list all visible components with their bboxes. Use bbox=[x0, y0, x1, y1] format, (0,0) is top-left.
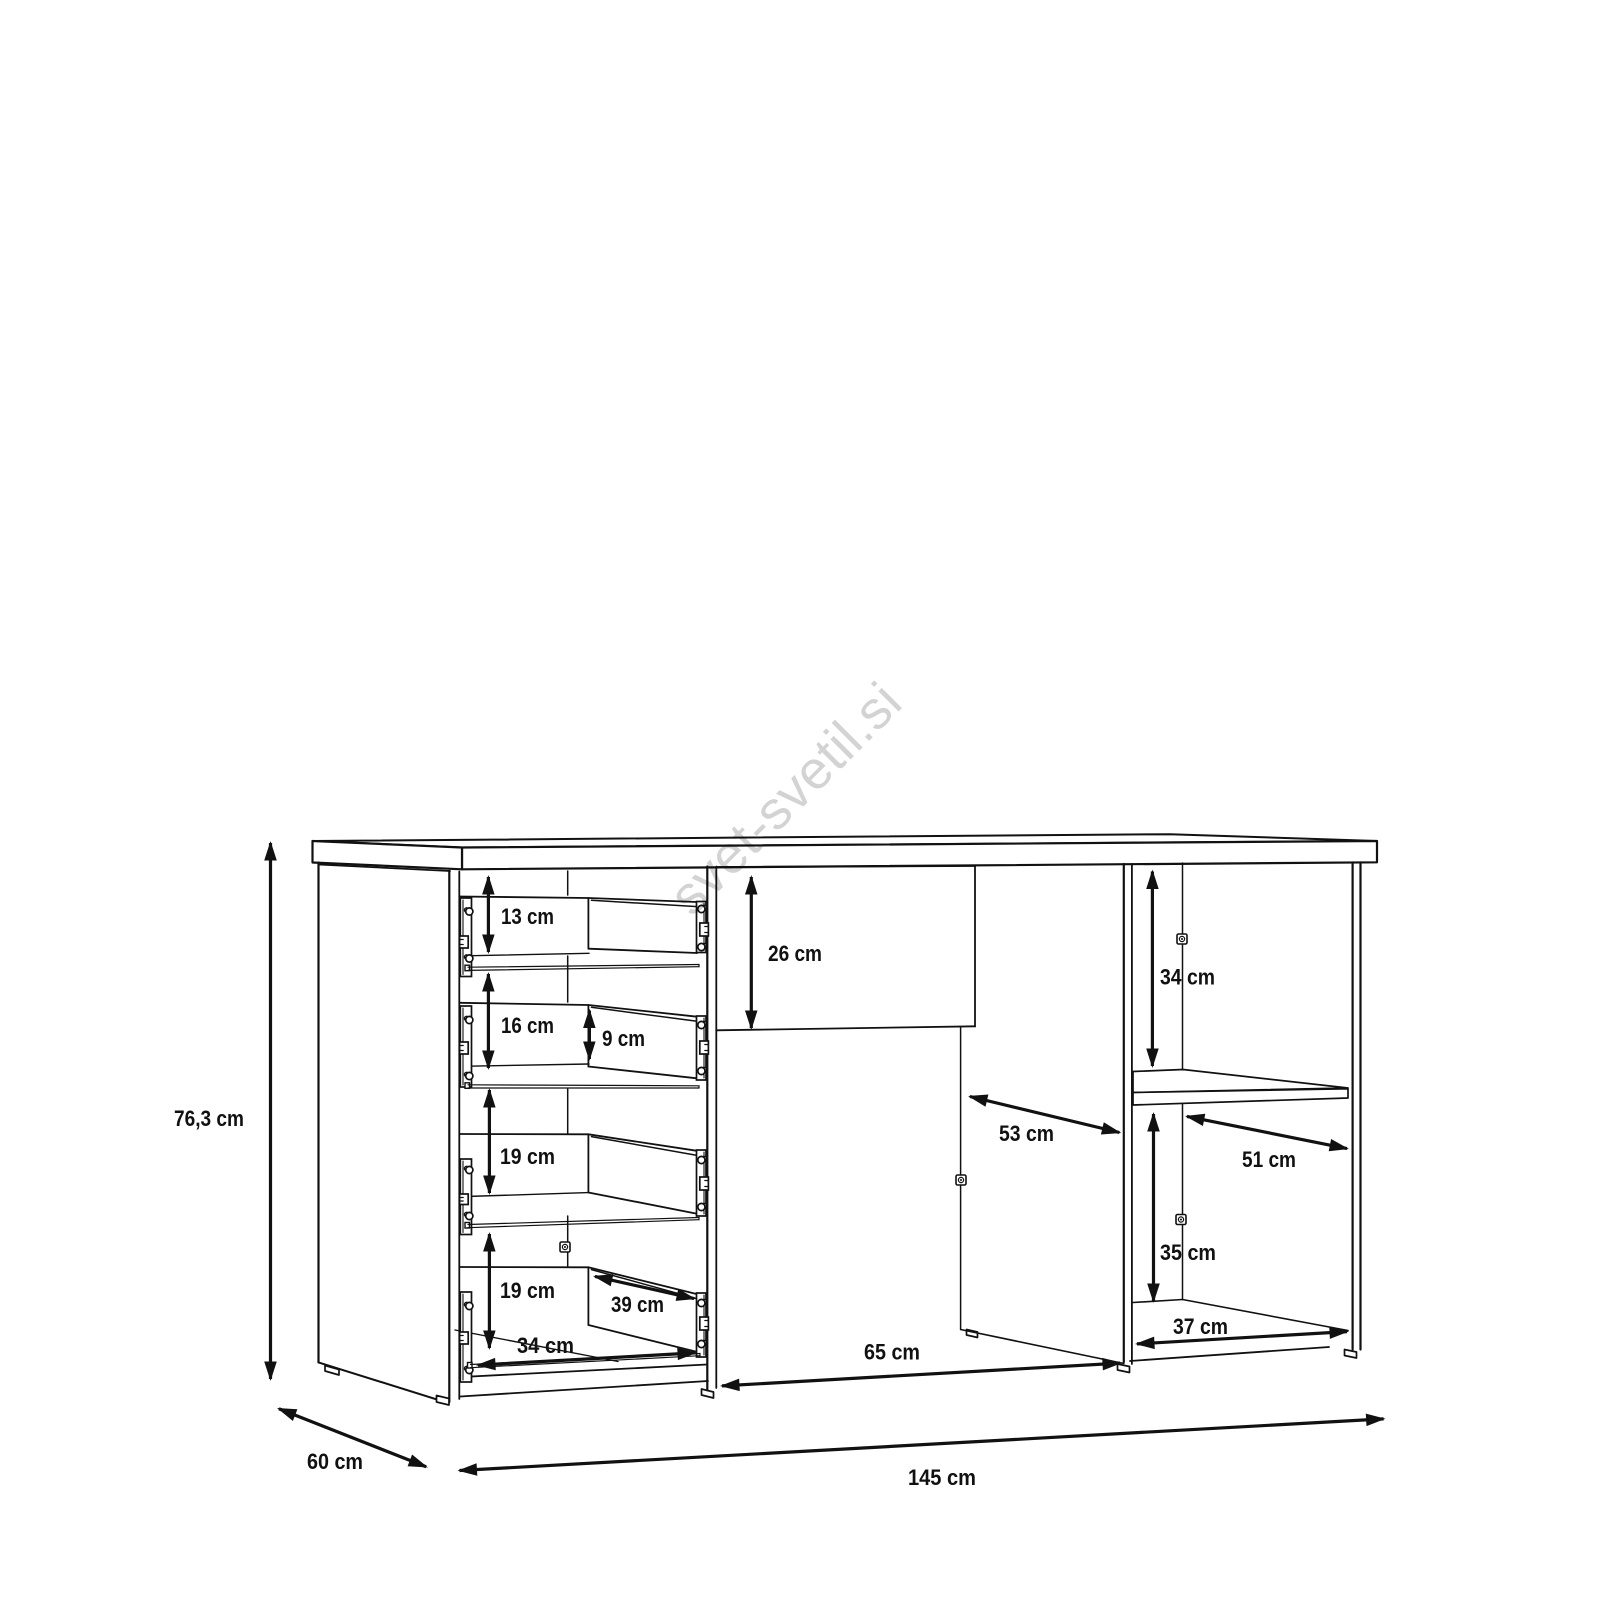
svg-text:39 cm: 39 cm bbox=[611, 1292, 664, 1317]
svg-text:37 cm: 37 cm bbox=[1173, 1314, 1228, 1339]
svg-text:60 cm: 60 cm bbox=[307, 1449, 363, 1474]
svg-text:34 cm: 34 cm bbox=[1160, 965, 1215, 990]
svg-text:145 cm: 145 cm bbox=[908, 1465, 976, 1490]
svg-text:51 cm: 51 cm bbox=[1242, 1147, 1296, 1172]
svg-text:19 cm: 19 cm bbox=[500, 1278, 555, 1303]
svg-text:65 cm: 65 cm bbox=[864, 1340, 920, 1365]
svg-text:34 cm: 34 cm bbox=[517, 1333, 574, 1358]
svg-text:26 cm: 26 cm bbox=[768, 941, 822, 966]
svg-text:53 cm: 53 cm bbox=[999, 1121, 1054, 1146]
svg-text:9 cm: 9 cm bbox=[602, 1026, 645, 1051]
svg-text:13 cm: 13 cm bbox=[501, 904, 554, 929]
svg-text:16 cm: 16 cm bbox=[501, 1013, 554, 1038]
svg-text:76,3 cm: 76,3 cm bbox=[174, 1106, 244, 1131]
svg-text:19 cm: 19 cm bbox=[500, 1144, 555, 1169]
svg-text:35 cm: 35 cm bbox=[1160, 1240, 1216, 1265]
